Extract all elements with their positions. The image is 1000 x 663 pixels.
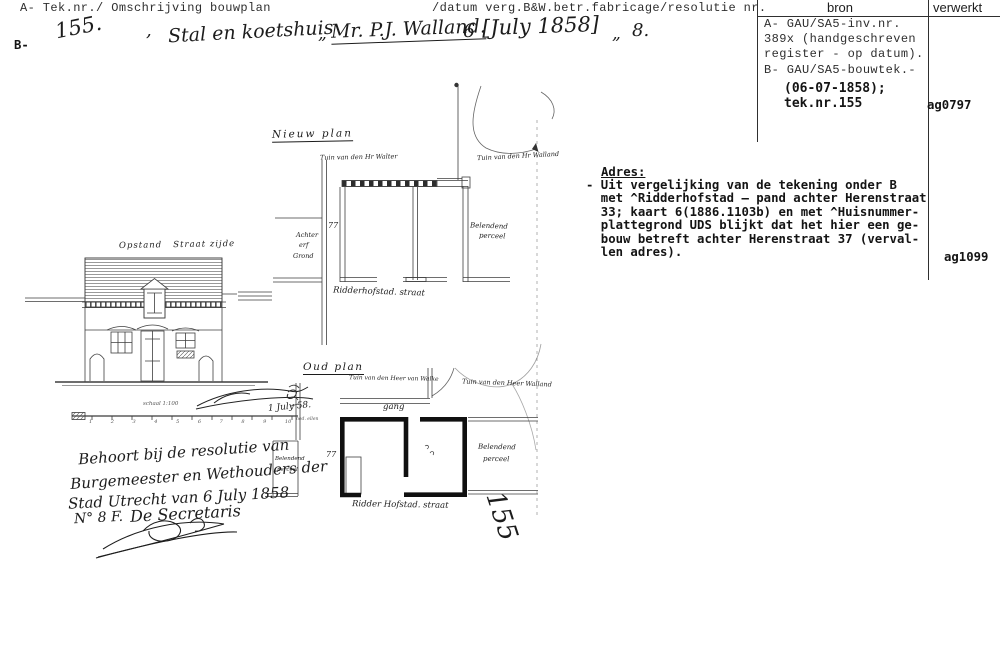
nieuw-street-label: Ridderhofstad. straat [333,285,425,298]
entry-datum-day: 6 [463,20,475,42]
scale-label: schaal 1:100 [143,401,178,407]
scale-numbers: 1 2 3 4 5 6 7 8 9 10 [89,419,291,425]
record-card-page: A- Tek.nr./ Omschrijving bouwplan /datum… [0,0,1000,663]
nieuw-garden-right-label: Tuin van den Hr Walland [477,150,559,162]
oud-plot-right-label: perceel [483,455,510,463]
column-header-bron: bron [827,0,853,15]
scale-end-label: ned. ellen [296,417,318,422]
nieuw-door-mark: 77 [328,221,338,230]
oud-plan-title: Oud plan [303,361,364,375]
signature-date: 1 July 58. [268,400,312,414]
oud-door-mark: 77 [326,450,336,459]
bron-line: 389x (handgeschreven [764,32,924,47]
verwerkt-left-rule [928,0,929,280]
adres-line: plattegrond UDS blijkt dat het hier een … [586,219,927,232]
nieuw-plot-left-label: erf [299,241,308,249]
adres-heading: Adres: [601,165,645,179]
oud-gang-label: gang [383,402,404,412]
bron-left-rule [757,0,758,142]
adres-line: 33; kaart 6(1886.1103b) en met ^Huisnumm… [586,206,927,219]
nieuw-plot-left-label: Grond [293,252,314,260]
adres-line: bouw betreft achter Herenstraat 37 (verv… [586,233,927,246]
nieuw-plot-right-label: Belendend [470,221,508,230]
verwerkt-code-b: ag1099 [944,250,988,264]
nieuw-garden-left-label: Tuin van den Hr Walter [320,152,398,161]
bron-added-line: tek.nr.155 [784,96,886,111]
archive-stamp-number: 155 [479,488,523,544]
oud-garden-right-label: Tuin van den Heer Walland [462,377,552,388]
verwerkt-code-a: ag0797 [927,98,971,112]
column-header-verwerkt: verwerkt [933,0,982,15]
approval-line: N° 8 F. [74,509,124,528]
oud-street-label: Ridder Hofstad. straat [352,499,449,511]
row-b-label: B- [14,38,29,52]
entry-comma: , [146,20,152,41]
bron-added-line: (06-07-1858); [784,81,886,96]
bron-line: register - op datum). [764,47,924,62]
entry-omschrijving: Stal en koetshuis [168,17,334,48]
elevation-title: Opstand Straat zijde [119,239,235,251]
adres-line: len adres). [586,246,927,259]
entry-quote-2: „ [612,24,621,44]
adres-line: - Uit vergelijking van de tekening onder… [586,179,927,192]
bron-added-block: (06-07-1858); tek.nr.155 [784,81,886,111]
header-left-title: A- Tek.nr./ Omschrijving bouwplan [20,1,271,15]
nieuw-plan-title: Nieuw plan [272,127,353,142]
bron-line: B- GAU/SA5-bouwtek.- [764,63,924,78]
nieuw-plot-right-label: perceel [479,232,506,241]
bron-typed-block: A- GAU/SA5-inv.nr. 389x (handgeschreven … [764,17,924,78]
entry-tek-nr: 155. [53,11,103,43]
nieuw-plot-left-label: Achter [296,231,318,239]
oud-garden-left-label: Tuin van den Heer van Walke [349,374,439,383]
adres-line: met ^Ridderhofstad – pand achter Herenst… [586,192,927,205]
header-right-title: /datum verg.B&W.betr.fabricage/resolutie… [432,1,766,15]
adres-block: - Uit vergelijking van de tekening onder… [586,179,927,259]
oud-plot-right-label: Belendend [478,443,516,452]
bron-line: A- GAU/SA5-inv.nr. [764,17,924,32]
entry-quote-1: „ [318,24,327,44]
entry-resolutie-nr: 8. [632,20,649,41]
entry-datum: [July 1858] [482,12,600,40]
